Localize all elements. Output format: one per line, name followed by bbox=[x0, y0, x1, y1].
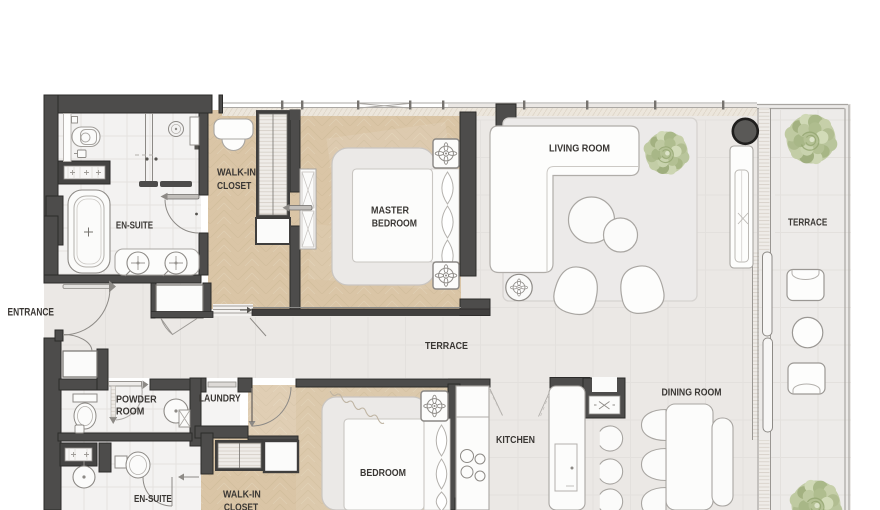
svg-text:BEDROOM: BEDROOM bbox=[360, 468, 406, 479]
svg-text:LAUNDRY: LAUNDRY bbox=[199, 394, 241, 405]
svg-text:ENTRANCE: ENTRANCE bbox=[8, 306, 55, 318]
svg-text:CLOSET: CLOSET bbox=[217, 181, 251, 192]
svg-text:WALK-IN: WALK-IN bbox=[217, 167, 256, 178]
svg-text:LIVING ROOM: LIVING ROOM bbox=[549, 142, 610, 154]
svg-text:WALK-IN: WALK-IN bbox=[223, 489, 261, 500]
svg-text:DINING ROOM: DINING ROOM bbox=[662, 388, 722, 399]
svg-text:MASTER: MASTER bbox=[371, 206, 410, 217]
svg-text:BEDROOM: BEDROOM bbox=[372, 218, 417, 229]
svg-text:TERRACE: TERRACE bbox=[788, 217, 828, 228]
svg-text:TERRACE: TERRACE bbox=[425, 341, 468, 352]
svg-text:ROOM: ROOM bbox=[116, 407, 144, 418]
svg-text:CLOSET: CLOSET bbox=[224, 503, 258, 510]
svg-text:EN-SUITE: EN-SUITE bbox=[134, 494, 172, 505]
svg-text:POWDER: POWDER bbox=[116, 394, 157, 405]
svg-text:KITCHEN: KITCHEN bbox=[496, 435, 535, 446]
svg-text:EN-SUITE: EN-SUITE bbox=[116, 220, 153, 231]
